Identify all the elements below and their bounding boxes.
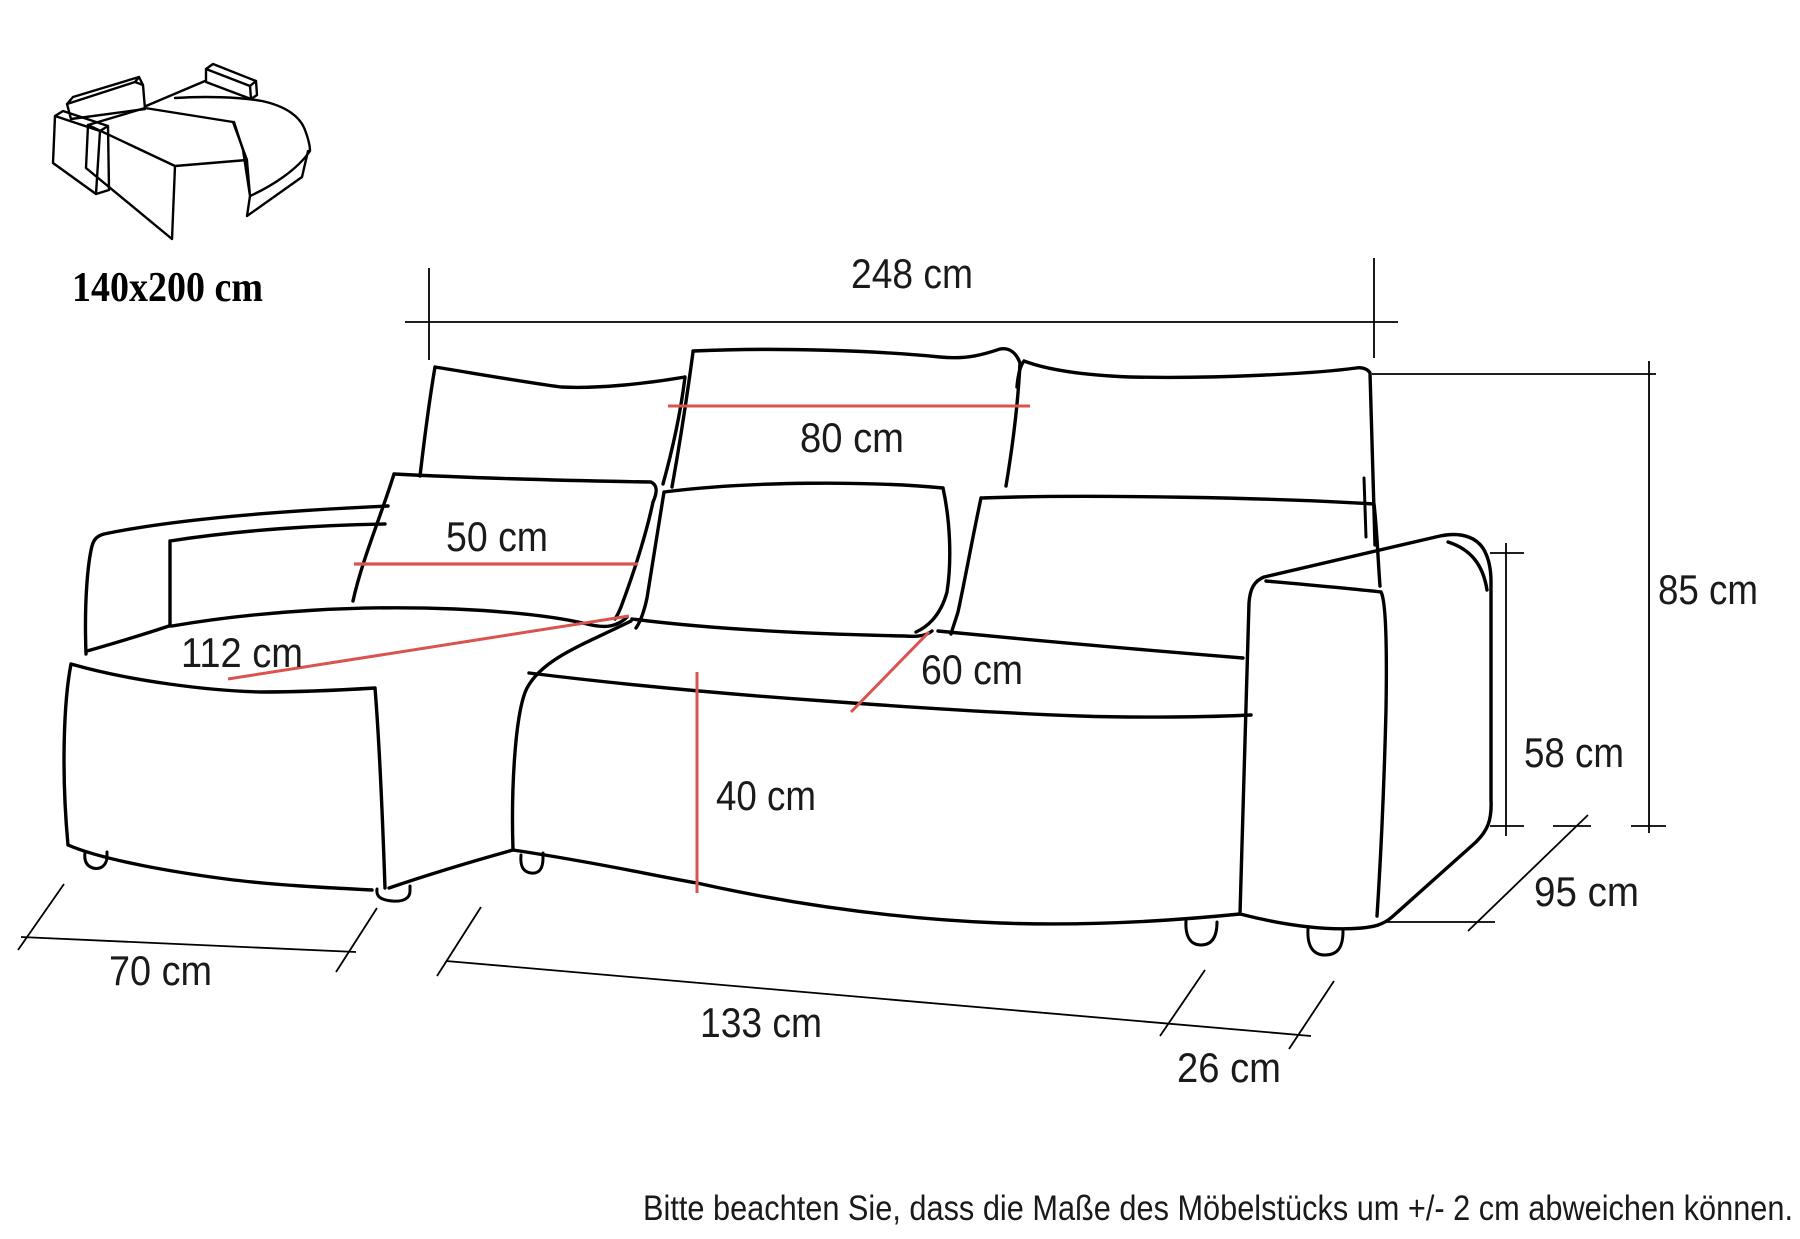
- svg-text:140x200 cm: 140x200 cm: [72, 265, 263, 311]
- svg-text:133 cm: 133 cm: [700, 999, 822, 1046]
- svg-text:50 cm: 50 cm: [446, 513, 548, 560]
- svg-text:80 cm: 80 cm: [800, 414, 904, 461]
- svg-text:26 cm: 26 cm: [1177, 1044, 1281, 1091]
- svg-text:85 cm: 85 cm: [1658, 566, 1758, 613]
- svg-text:40 cm: 40 cm: [716, 772, 816, 819]
- svg-text:112 cm: 112 cm: [181, 629, 303, 676]
- svg-text:95 cm: 95 cm: [1534, 868, 1639, 915]
- svg-text:70 cm: 70 cm: [109, 947, 212, 994]
- svg-text:60 cm: 60 cm: [921, 646, 1023, 693]
- svg-text:248 cm: 248 cm: [851, 250, 973, 297]
- svg-text:Bitte beachten Sie, dass die M: Bitte beachten Sie, dass die Maße des Mö…: [643, 1189, 1793, 1228]
- svg-text:58 cm: 58 cm: [1524, 729, 1624, 776]
